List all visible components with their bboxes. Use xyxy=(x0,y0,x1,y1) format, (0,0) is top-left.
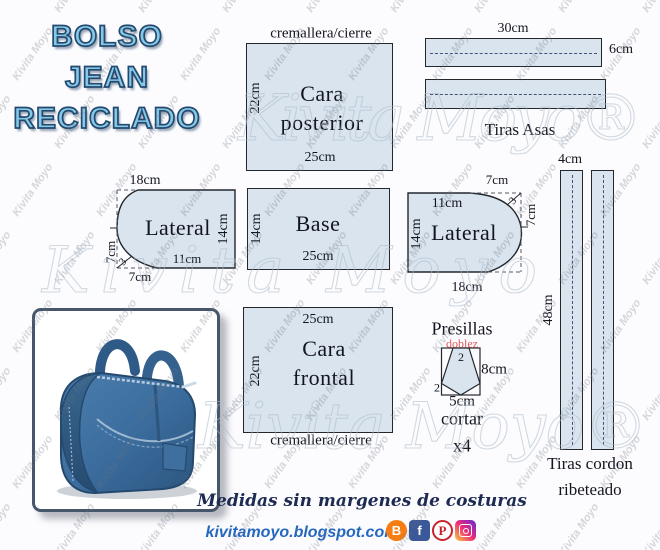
fold-line xyxy=(430,53,597,54)
blog-url[interactable]: kivitamoyo.blogspot.com xyxy=(206,524,399,542)
bag-photo xyxy=(32,308,220,512)
tiras-asas-width-label: 6cm xyxy=(609,42,633,58)
blogger-glyph: B xyxy=(392,523,401,538)
lateral-right-name: Lateral xyxy=(431,220,497,246)
watermark-tile: Kivita Moyo xyxy=(0,365,13,422)
watermark-tile: Kivita Moyo xyxy=(52,229,97,286)
tiras-asas-strip-2 xyxy=(425,79,606,109)
title-line-3: RECICLADO xyxy=(12,98,202,139)
lateral-left-right-label: 14cm xyxy=(216,213,232,244)
watermark-tile: Kivita Moyo xyxy=(640,365,660,422)
watermark-tile: Kivita Moyo xyxy=(640,501,660,550)
watermark-tile: Kivita Moyo xyxy=(388,0,433,15)
lateral-right-left-label: 14cm xyxy=(409,218,425,249)
cara-frontal-width-label: 25cm xyxy=(302,312,333,328)
camera-lens xyxy=(463,528,469,534)
watermark-tile: Kivita Moyo xyxy=(10,161,55,218)
fold-line xyxy=(430,94,601,95)
title-line-1: BOLSO xyxy=(12,16,202,57)
watermark-tile: Kivita Moyo xyxy=(556,0,601,15)
cara-posterior-zipper-label: cremallera/cierre xyxy=(270,26,372,43)
tiras-cordon-name-1: Tiras cordon xyxy=(547,454,633,474)
watermark-tile: Kivita Moyo xyxy=(136,0,181,15)
cara-frontal-name-2: frontal xyxy=(293,365,355,391)
tiras-asas-length-label: 30cm xyxy=(497,21,528,37)
lateral-left-top-label: 18cm xyxy=(129,173,160,189)
base-height-label: 14cm xyxy=(249,213,265,244)
tiras-asas-name: Tiras Asas xyxy=(485,120,556,140)
bag-pocket xyxy=(163,443,187,471)
presilla-side-label: 8cm xyxy=(481,362,507,379)
pinterest-icon[interactable]: P xyxy=(432,520,453,541)
blogger-icon[interactable]: B xyxy=(386,520,407,541)
presilla-cut-label: cortar xyxy=(441,409,483,430)
facebook-glyph: f xyxy=(417,523,421,538)
cara-posterior-height-label: 22cm xyxy=(248,82,264,113)
cara-posterior-width-label: 25cm xyxy=(304,150,335,166)
watermark-tile: Kivita Moyo xyxy=(472,0,517,15)
tiras-cordon-length-label: 48cm xyxy=(541,294,557,325)
bag-zipper-pull xyxy=(183,383,195,387)
base-width-label: 25cm xyxy=(302,249,333,265)
pattern-sheet: BOLSO JEAN RECICLADO cremallera/cierre 2… xyxy=(0,0,660,550)
presillas-fold-label: doblez xyxy=(446,337,478,352)
lateral-left-name: Lateral xyxy=(145,215,211,241)
cara-posterior-name-2: posterior xyxy=(281,110,364,136)
page-title: BOLSO JEAN RECICLADO xyxy=(12,16,202,139)
lateral-left-bottom-inner-label: 11cm xyxy=(173,251,201,267)
lateral-left-bottom-label: 7cm xyxy=(129,269,151,285)
presilla-bottom-corner-label: 2 xyxy=(434,381,440,396)
watermark-tile: Kivita Moyo xyxy=(556,501,601,550)
lateral-right-bottom-label: 18cm xyxy=(451,280,482,296)
fold-line xyxy=(603,175,604,445)
cara-posterior-name-1: Cara xyxy=(300,81,344,107)
lateral-right-top-inner-label: 11cm xyxy=(432,196,463,212)
lateral-right-right-label: 7cm xyxy=(523,204,539,226)
watermark-tile: Kivita Moyo xyxy=(388,365,433,422)
cara-frontal-zipper-label: cremallera/cierre xyxy=(270,433,372,450)
watermark-tile: Kivita Moyo xyxy=(52,0,97,15)
camera-icon xyxy=(459,524,472,537)
watermark-tile: Kivita Moyo xyxy=(0,229,13,286)
pinterest-glyph: P xyxy=(439,523,447,539)
tiras-asas-strip-1 xyxy=(425,38,602,67)
watermark-tile: Kivita Moyo xyxy=(304,0,349,15)
cara-frontal-name-1: Cara xyxy=(302,336,346,362)
instagram-icon[interactable] xyxy=(455,520,476,541)
watermark-tile: Kivita Moyo xyxy=(640,93,660,150)
base-name: Base xyxy=(296,211,341,237)
fold-line xyxy=(572,175,573,445)
tiras-cordon-strip-1 xyxy=(560,170,583,450)
tiras-cordon-strip-2 xyxy=(591,170,614,450)
watermark-tile: Kivita Moyo xyxy=(0,0,13,15)
cara-frontal-height-label: 22cm xyxy=(248,355,264,386)
watermark-tile: Kivita Moyo xyxy=(640,229,660,286)
presilla-quantity-label: x4 xyxy=(453,436,471,457)
bag-illustration xyxy=(35,311,217,509)
social-icons: B f P xyxy=(386,520,476,541)
tiras-cordon-name-2: ribeteado xyxy=(558,480,621,500)
title-line-2: JEAN xyxy=(12,57,202,98)
watermark-tile: Kivita Moyo xyxy=(640,0,660,15)
presilla-top-measure: 2 xyxy=(458,350,464,364)
watermark-tile: Kivita Moyo xyxy=(0,501,13,550)
tiras-cordon-width-label: 4cm xyxy=(558,152,582,168)
measurements-note: Medidas sin margenes de costuras xyxy=(197,491,527,511)
watermark-tile: Kivita Moyo xyxy=(220,0,265,15)
lateral-right-top-outer-label: 7cm xyxy=(486,172,508,188)
facebook-icon[interactable]: f xyxy=(409,520,430,541)
